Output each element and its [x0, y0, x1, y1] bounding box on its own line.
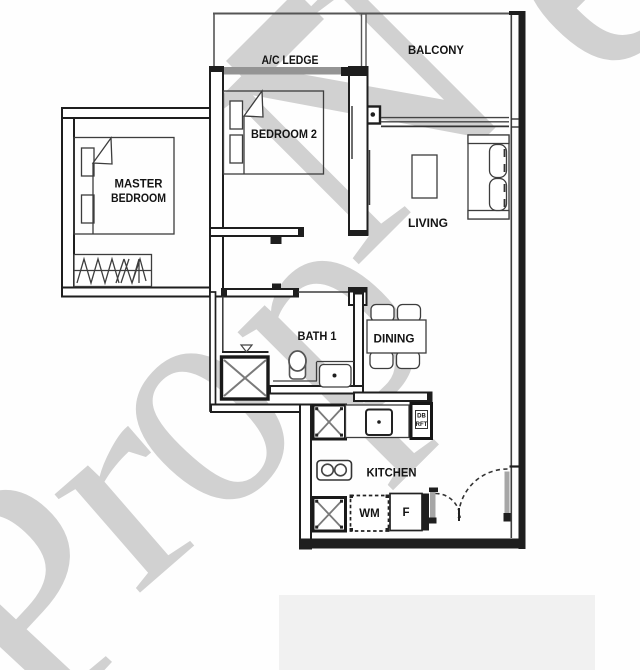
svg-text:MASTER: MASTER	[115, 179, 164, 191]
svg-text:LIVING: LIVING	[408, 218, 448, 230]
svg-text:BEDROOM 2: BEDROOM 2	[251, 129, 317, 141]
svg-text:KITCHEN: KITCHEN	[367, 468, 417, 480]
svg-text:BATH 1: BATH 1	[298, 331, 338, 343]
svg-text:BALCONY: BALCONY	[408, 45, 464, 57]
svg-text:DINING: DINING	[374, 334, 415, 346]
svg-text:F: F	[402, 507, 409, 519]
svg-text:BEDROOM: BEDROOM	[111, 193, 166, 205]
svg-text:WM: WM	[359, 508, 379, 520]
svg-text:DB: DB	[417, 414, 426, 420]
svg-text:A/C LEDGE: A/C LEDGE	[262, 55, 319, 67]
svg-text:RFT: RFT	[416, 422, 428, 428]
